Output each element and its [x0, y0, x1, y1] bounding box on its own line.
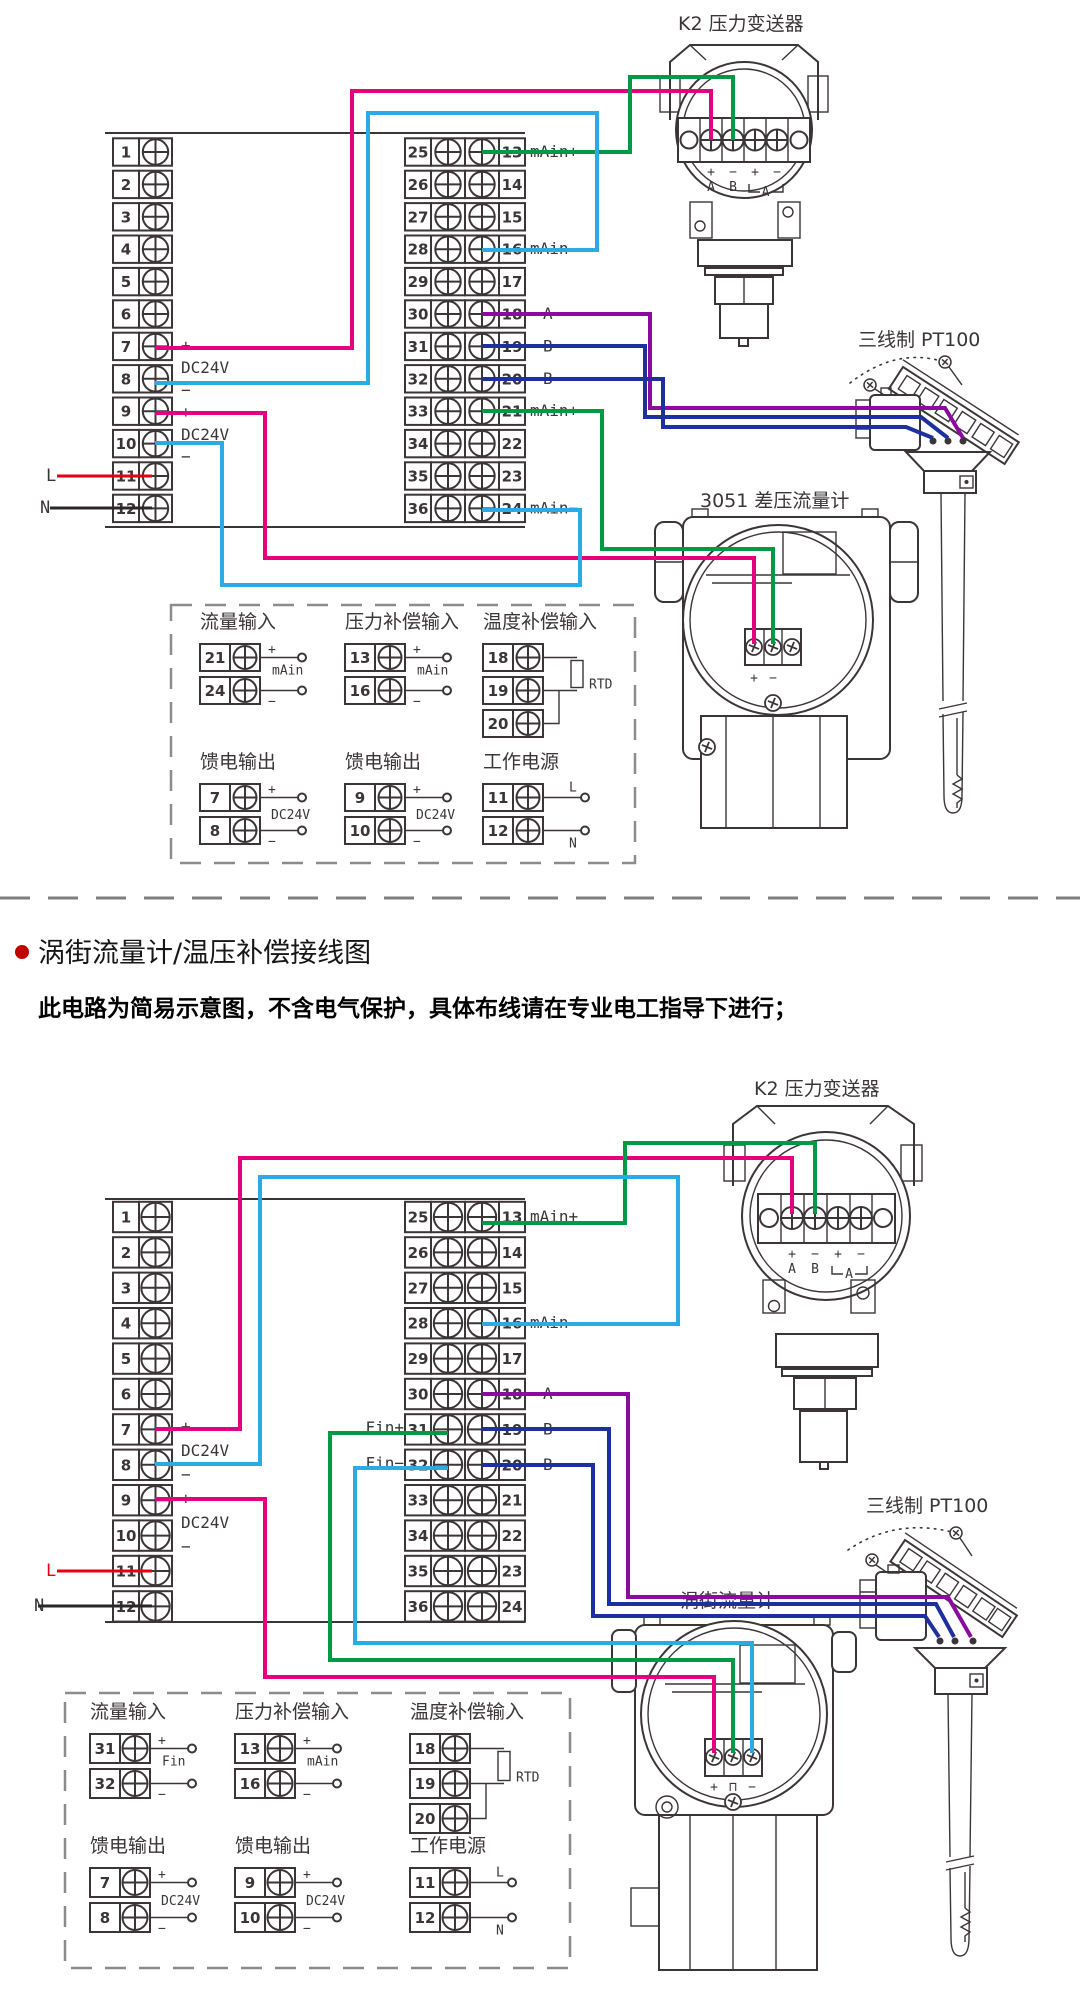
- label: 15: [502, 1279, 523, 1297]
- label: 35: [408, 1563, 429, 1581]
- label: +: [710, 1780, 718, 1795]
- left-terminal-block: 123456789101112: [113, 138, 172, 522]
- pt100-probe: [939, 493, 967, 813]
- pt100-probe: [946, 1694, 974, 1956]
- label: 26: [408, 176, 429, 194]
- open-terminal-icon: [188, 1914, 196, 1922]
- open-terminal-icon: [581, 794, 589, 802]
- middle-terminal-block: 2513261427152816291730183119322033213422…: [405, 1202, 525, 1622]
- line-l-label: L: [46, 1561, 56, 1581]
- label: 24: [502, 1598, 523, 1616]
- open-terminal-icon: [298, 827, 306, 835]
- open-terminal-icon: [298, 654, 306, 662]
- label: 3: [121, 1279, 131, 1297]
- label: 31: [408, 338, 429, 356]
- label: 13: [350, 649, 371, 667]
- label: 馈电输出: [200, 751, 276, 773]
- label: DC24V: [181, 425, 230, 444]
- label: +: [413, 783, 421, 798]
- label: ⊓: [729, 1780, 737, 1795]
- label: −: [158, 1922, 166, 1937]
- dp-flowmeter-3051: 3051 差压流量计 +−: [655, 490, 918, 828]
- label: +: [834, 1247, 842, 1262]
- label: mAin−: [530, 498, 578, 517]
- label: 11: [415, 1874, 436, 1892]
- open-terminal-icon: [333, 1914, 341, 1922]
- pt100-head: [870, 395, 920, 450]
- wire-b1-to-pt100: [482, 1429, 954, 1637]
- label: 14: [502, 1244, 523, 1262]
- label: −: [158, 1788, 166, 1803]
- label: DC24V: [271, 808, 310, 823]
- label: 2: [121, 1244, 131, 1262]
- open-terminal-icon: [188, 1745, 196, 1753]
- label: 1: [121, 144, 131, 162]
- label: 29: [408, 273, 429, 291]
- label: 7: [121, 338, 131, 356]
- legend-feed-output-1: 馈电输出78+−DC24V: [200, 751, 310, 850]
- open-terminal-icon: [443, 654, 451, 662]
- meter-lower-body: [659, 1815, 817, 1970]
- label: 10: [116, 435, 137, 453]
- label: +: [707, 165, 715, 180]
- label: 流量输入: [90, 1701, 166, 1723]
- label: 32: [408, 1456, 429, 1474]
- label: B: [811, 1262, 819, 1277]
- k2-pressure-transmitter: K2 压力变送器 +−+− AB A: [724, 1078, 922, 1469]
- label: 温度补偿输入: [410, 1701, 524, 1723]
- label: mAin: [417, 664, 448, 679]
- label: −: [303, 1788, 311, 1803]
- label: 压力补偿输入: [345, 611, 459, 633]
- label: +: [268, 783, 276, 798]
- label: DC24V: [181, 358, 230, 377]
- label: 6: [121, 306, 131, 324]
- label: 9: [121, 403, 131, 421]
- label: 16: [350, 682, 371, 700]
- wiring-diagram-canvas: 123456789101112 251326142715281629173018…: [0, 0, 1080, 1997]
- label: 22: [502, 435, 523, 453]
- label: +: [181, 1417, 191, 1436]
- label: 28: [408, 241, 429, 259]
- open-terminal-icon: [188, 1780, 196, 1788]
- pt100-neck: [915, 1648, 1005, 1668]
- label: 36: [408, 500, 429, 518]
- legend-lead: [543, 691, 559, 724]
- pt100-sensor: 三线制 PT100: [848, 1495, 1020, 1956]
- label: A: [707, 180, 715, 195]
- label: 7: [210, 789, 220, 807]
- label: 32: [95, 1775, 116, 1793]
- label: −: [268, 835, 276, 850]
- label: +: [413, 643, 421, 658]
- diagram-vortex-flowmeter: 123456789101112 251326142715281629173018…: [34, 1078, 1020, 1970]
- label: 6: [121, 1386, 131, 1404]
- open-terminal-icon: [298, 687, 306, 695]
- label: 8: [100, 1909, 110, 1927]
- label: L: [496, 1866, 504, 1881]
- label: 35: [408, 468, 429, 486]
- label: 1: [121, 1209, 131, 1227]
- open-terminal-icon: [333, 1745, 341, 1753]
- legend-feed-output-2: 馈电输出910+−DC24V: [345, 751, 455, 850]
- label: DC24V: [306, 1894, 345, 1909]
- label: 20: [488, 715, 509, 733]
- label: 31: [95, 1740, 116, 1758]
- mAin-labels: mAin+mAin−mAin+mAin−: [530, 142, 578, 517]
- label: 30: [408, 1386, 429, 1404]
- label: −: [268, 695, 276, 710]
- label: DC24V: [181, 1513, 230, 1532]
- label: 流量输入: [200, 611, 276, 633]
- label: 7: [121, 1421, 131, 1439]
- label: 温度补偿输入: [483, 611, 597, 633]
- label: 11: [488, 789, 509, 807]
- label: RTD: [516, 1771, 540, 1786]
- label: 12: [488, 822, 509, 840]
- rtd-resistor-icon: [498, 1752, 510, 1781]
- label: 7: [100, 1874, 110, 1892]
- pt100-neck: [906, 452, 990, 471]
- label: 24: [205, 682, 226, 700]
- label: 20: [415, 1810, 436, 1828]
- label: 8: [121, 1456, 131, 1474]
- legend-work-power: 工作电源1112LN: [410, 1835, 516, 1939]
- label: N: [496, 1924, 504, 1939]
- label: 馈电输出: [90, 1835, 166, 1857]
- label: 26: [408, 1244, 429, 1262]
- fin-labels: Fin+Fin−: [365, 1418, 404, 1472]
- legend-feed-output-2: 馈电输出910+−DC24V: [235, 1835, 345, 1937]
- label: 36: [408, 1598, 429, 1616]
- label: +: [158, 1868, 166, 1883]
- section-bullet-icon: [15, 945, 29, 959]
- dc24v-labels: +DC24V−+DC24V−: [181, 1417, 230, 1556]
- open-terminal-icon: [188, 1879, 196, 1887]
- label: 31: [408, 1421, 429, 1439]
- open-terminal-icon: [581, 827, 589, 835]
- label: 馈电输出: [235, 1835, 311, 1857]
- label: −: [857, 1247, 865, 1262]
- label: −: [303, 1922, 311, 1937]
- label: 馈电输出: [345, 751, 421, 773]
- label: 25: [408, 144, 429, 162]
- label: 压力补偿输入: [235, 1701, 349, 1723]
- label: 28: [408, 1315, 429, 1333]
- vortex-flowmeter: 涡街流量计 +⊓−: [612, 1590, 856, 1970]
- label: 8: [121, 370, 131, 388]
- meter-sign-labels: +⊓−: [710, 1780, 756, 1795]
- mAin-labels: mAin+mAin−: [530, 1207, 578, 1332]
- label: +: [303, 1734, 311, 1749]
- label: −: [748, 1780, 756, 1795]
- label: DC24V: [416, 808, 455, 823]
- label: 23: [502, 468, 523, 486]
- label: 22: [502, 1527, 523, 1545]
- label: L: [569, 781, 577, 796]
- instrument-outline: [105, 1199, 525, 1622]
- section-note: 此电路为简易示意图，不含电气保护，具体布线请在专业电工指导下进行；: [38, 995, 797, 1022]
- legend-flow-input: 流量输入2124+−mAin: [200, 611, 306, 710]
- section-title: 涡街流量计/温压补偿接线图: [38, 938, 371, 969]
- label: 4: [121, 1315, 131, 1333]
- label: −: [181, 447, 191, 466]
- label: 9: [355, 789, 365, 807]
- label: −: [413, 695, 421, 710]
- open-terminal-icon: [508, 1879, 516, 1887]
- wiring-diagram-page: 123456789101112 251326142715281629173018…: [0, 0, 1080, 1997]
- label: 工作电源: [410, 1835, 486, 1857]
- diagram-dp-flowmeter: 123456789101112 251326142715281629173018…: [40, 13, 1022, 863]
- middle-terminal-block: 2513261427152816291730183119322033213422…: [405, 138, 525, 522]
- label: −: [811, 1247, 819, 1262]
- label: −: [181, 1537, 191, 1556]
- open-terminal-icon: [443, 827, 451, 835]
- meter-title: 涡街流量计: [680, 1590, 775, 1612]
- label: −: [181, 1465, 191, 1484]
- pt100-title: 三线制 PT100: [866, 1495, 988, 1517]
- label: Fin: [162, 1755, 185, 1770]
- label: 18: [488, 649, 509, 667]
- label: 5: [121, 273, 131, 291]
- label: 17: [502, 273, 523, 291]
- label: 4: [121, 241, 131, 259]
- open-terminal-icon: [443, 687, 451, 695]
- label: 10: [116, 1527, 137, 1545]
- label: +: [750, 671, 758, 686]
- meter-lower-body: [701, 716, 847, 828]
- label: 29: [408, 1350, 429, 1368]
- label: 27: [408, 1279, 429, 1297]
- legend-pressure-input: 压力补偿输入1316+−mAin: [345, 611, 459, 710]
- label: 33: [408, 403, 429, 421]
- label: 16: [240, 1775, 261, 1793]
- label: 25: [408, 1209, 429, 1227]
- open-terminal-icon: [333, 1879, 341, 1887]
- label: +: [751, 165, 759, 180]
- label: 9: [245, 1874, 255, 1892]
- label: RTD: [589, 678, 613, 693]
- label: N: [569, 837, 577, 852]
- label: 10: [240, 1909, 261, 1927]
- label: 18: [415, 1740, 436, 1758]
- label: 21: [502, 1492, 523, 1510]
- label: DC24V: [161, 1894, 200, 1909]
- label: 34: [408, 435, 429, 453]
- label: 工作电源: [483, 751, 559, 773]
- label: 34: [408, 1527, 429, 1545]
- label: 17: [502, 1350, 523, 1368]
- label: +: [181, 336, 191, 355]
- label: 19: [488, 682, 509, 700]
- label: 27: [408, 208, 429, 226]
- label: 13: [240, 1740, 261, 1758]
- label: DC24V: [181, 1441, 230, 1460]
- open-terminal-icon: [508, 1914, 516, 1922]
- instrument-outline: [105, 133, 525, 527]
- label: −: [729, 165, 737, 180]
- legend-temperature-input: 温度补偿输入181920RTD: [483, 611, 613, 737]
- label: −: [769, 671, 777, 686]
- pt100-title: 三线制 PT100: [858, 329, 980, 351]
- label: 10: [350, 822, 371, 840]
- legend-pressure-input: 压力补偿输入1316+−mAin: [235, 1701, 349, 1803]
- label: 3: [121, 208, 131, 226]
- label: +: [788, 1247, 796, 1262]
- label: 12: [415, 1909, 436, 1927]
- k2-title: K2 压力变送器: [678, 13, 804, 35]
- label: +: [303, 1868, 311, 1883]
- label: 19: [415, 1775, 436, 1793]
- label: 8: [210, 822, 220, 840]
- label: A: [788, 1262, 796, 1277]
- rtd-resistor-icon: [571, 661, 583, 688]
- open-terminal-icon: [298, 794, 306, 802]
- line-n-label: N: [40, 498, 50, 518]
- label: 32: [408, 370, 429, 388]
- label: mAin: [272, 664, 303, 679]
- label: 23: [502, 1563, 523, 1581]
- label: 33: [408, 1492, 429, 1510]
- label: 15: [502, 208, 523, 226]
- legend-feed-output-1: 馈电输出78+−DC24V: [90, 1835, 200, 1937]
- left-terminal-block: 123456789101112: [113, 1202, 172, 1622]
- wire-24v-to-k2: [155, 91, 711, 348]
- label: −: [413, 835, 421, 850]
- label: 14: [502, 176, 523, 194]
- legend-flow-input: 流量输入3132+−Fin: [90, 1701, 196, 1803]
- label: 9: [121, 1492, 131, 1510]
- k2-bracket-label: A: [762, 185, 770, 200]
- legend-temperature-input: 温度补偿输入181920RTD: [410, 1701, 540, 1833]
- legend-lead: [470, 1784, 486, 1819]
- legend-work-power: 工作电源1112LN: [483, 751, 589, 852]
- label: 21: [205, 649, 226, 667]
- label: B: [729, 180, 737, 195]
- label: +: [158, 1734, 166, 1749]
- k2-pressure-transmitter: K2 压力变送器 +−+− AB A: [660, 13, 828, 346]
- label: −: [773, 165, 781, 180]
- label: 2: [121, 176, 131, 194]
- open-terminal-icon: [333, 1780, 341, 1788]
- label: +: [268, 643, 276, 658]
- open-terminal-icon: [443, 794, 451, 802]
- meter-title: 3051 差压流量计: [700, 490, 849, 512]
- k2-title: K2 压力变送器: [754, 1078, 880, 1100]
- line-l-label: L: [46, 466, 56, 486]
- label: 30: [408, 306, 429, 324]
- label: 5: [121, 1350, 131, 1368]
- label: mAin: [307, 1755, 338, 1770]
